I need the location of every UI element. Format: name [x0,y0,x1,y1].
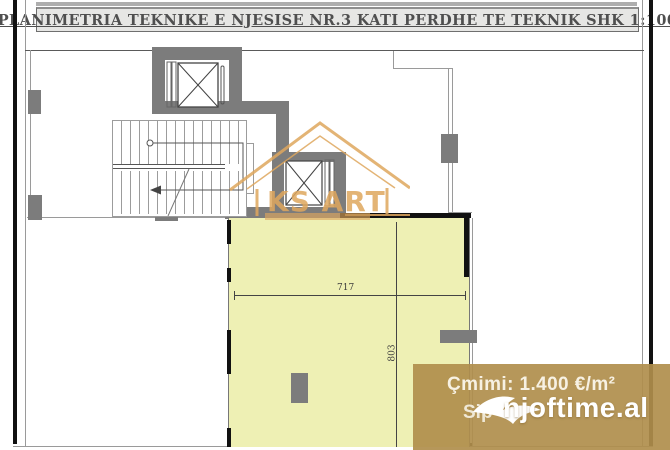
unit-wall-left-seg1 [227,220,231,244]
wall-lower-unit-top [27,217,228,218]
left-wall-column-1 [28,90,41,114]
corridor-wall-step-v [393,51,394,69]
corridor-wall-step-h [393,68,452,69]
dim-width-tick-left [234,291,235,300]
wall-left-inner [30,50,31,218]
dim-height-line [396,222,397,447]
left-wall-column-2 [28,195,42,220]
unit-wall-left-seg3 [227,330,231,374]
unit-wall-left-seg2 [227,268,231,282]
corridor-column [441,134,458,163]
plan-title-bar: PLANIMETRIA TEKNIKE E NJESISE NR.3 KATI … [36,7,639,32]
dim-height-label: 803 [388,344,398,361]
floor-plan-page: PLANIMETRIA TEKNIKE E NJESISE NR.3 KATI … [0,0,670,450]
outer-wall-left [13,0,17,444]
wall-top [25,50,644,51]
dim-width-line [234,295,466,296]
unit-wall-right-seg [464,213,469,277]
price-overlay: Çmimi: 1.400 €/m² Sip njoftime.al [413,364,670,450]
ksart-tagline-strip [265,213,370,220]
unit-right-column [440,330,477,343]
unit-pillar [291,373,308,403]
dim-width-tick-right [465,291,466,300]
wall-line-left-outer [25,0,26,447]
plan-title: PLANIMETRIA TEKNIKE E NJESISE NR.3 KATI … [0,12,670,29]
title-top-strip [36,2,637,6]
elevator1-cab [165,60,225,110]
njoftime-watermark: njoftime.al [503,392,649,424]
ksart-watermark: KS ART [225,115,410,220]
dim-width-label: 717 [337,283,354,293]
unit-wall-left-seg4 [227,428,231,447]
